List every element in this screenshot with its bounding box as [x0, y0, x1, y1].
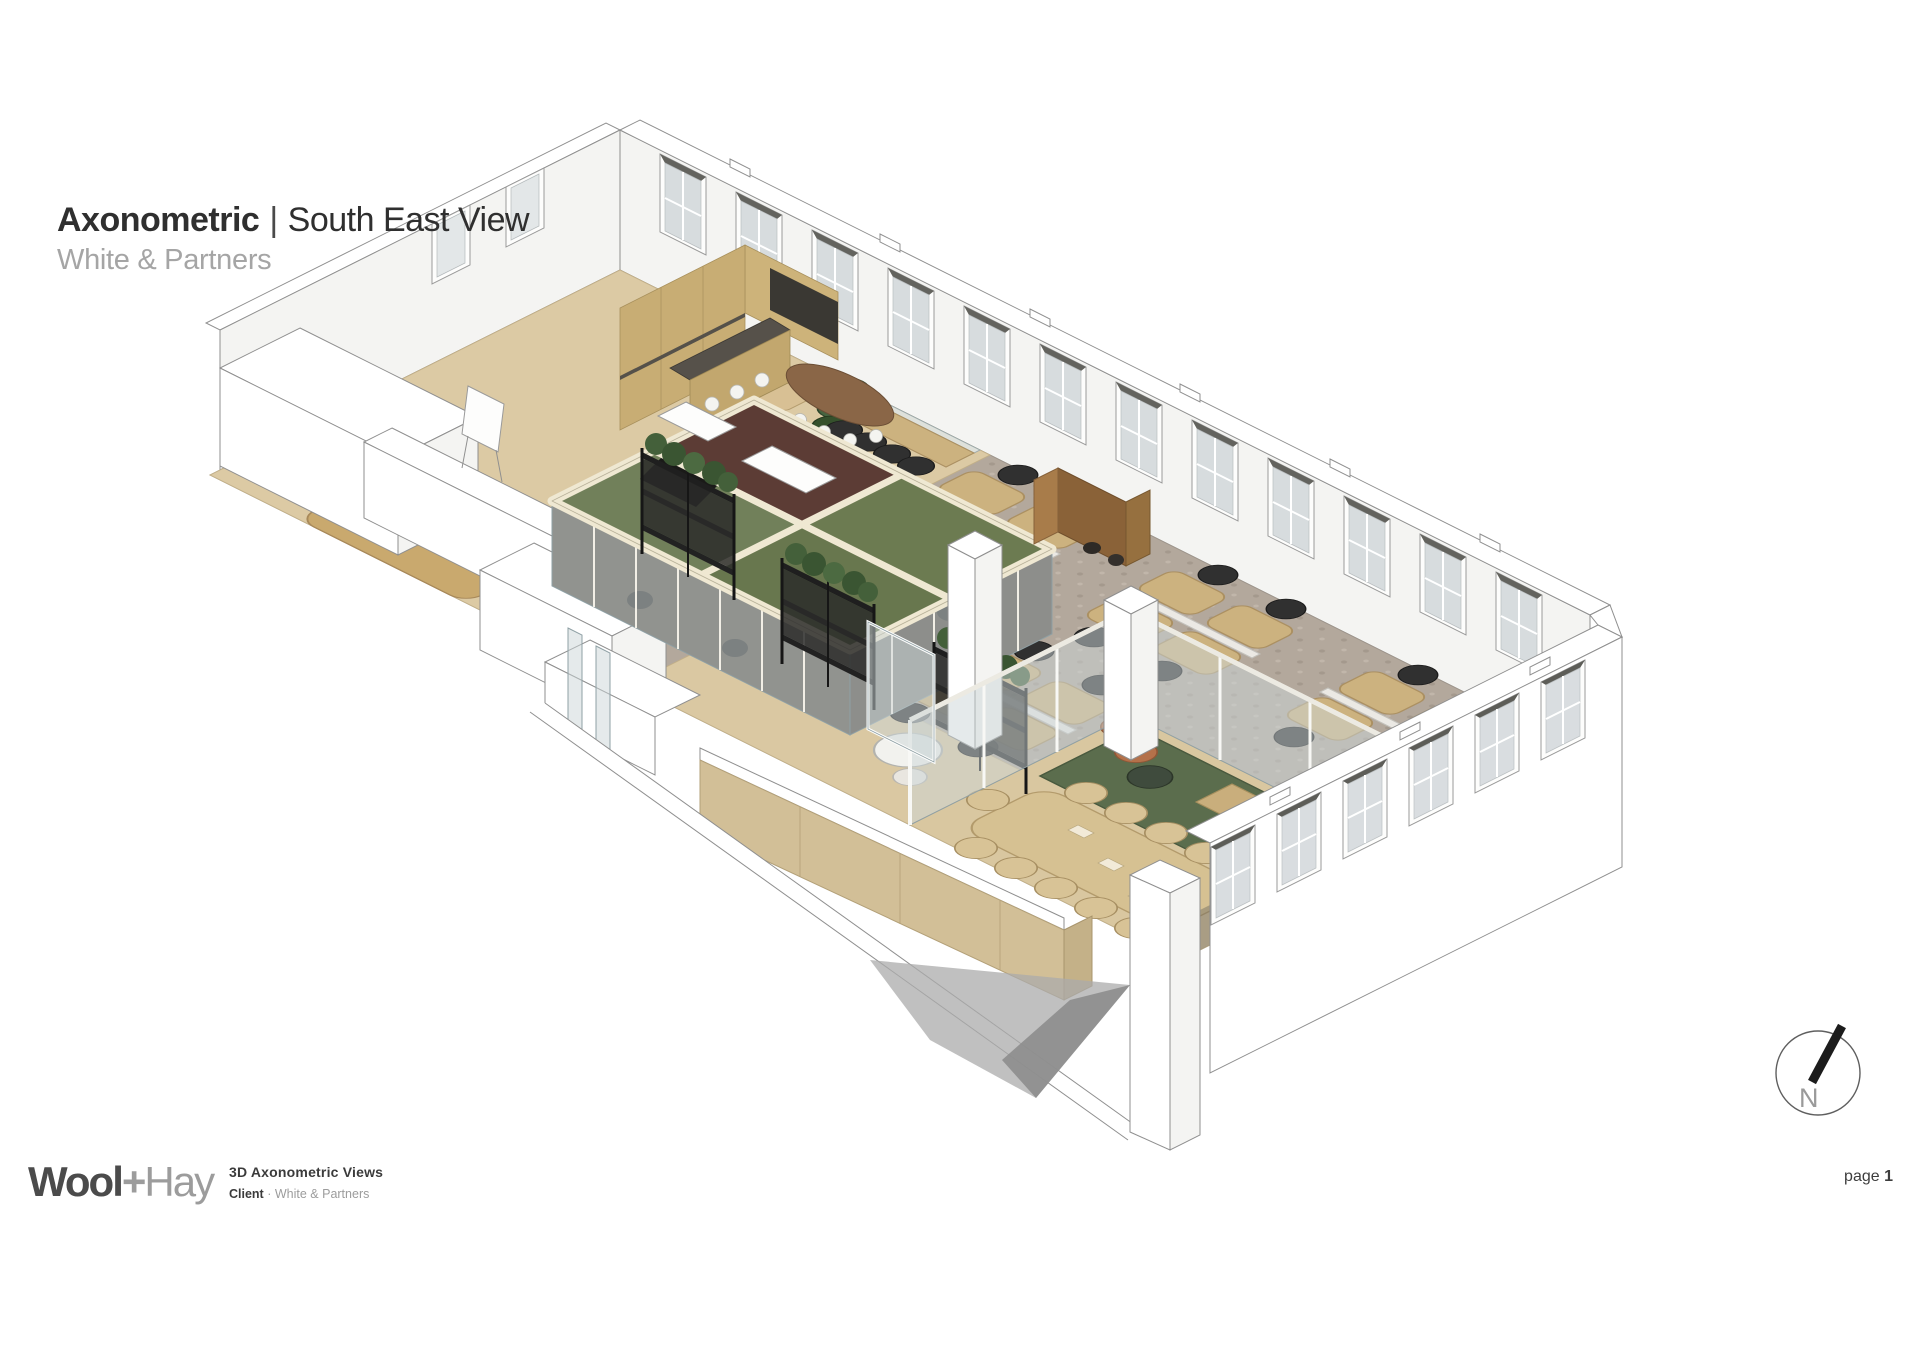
- page-number: page 1: [1844, 1168, 1893, 1186]
- logo-wool: Wool: [28, 1158, 122, 1205]
- bar-stool: [705, 397, 719, 411]
- client-subtitle: White & Partners: [57, 245, 529, 277]
- south-corner-pillar: [1130, 860, 1200, 1150]
- footer-document-block: 3D Axonometric Views Client · White & Pa…: [229, 1164, 383, 1201]
- logo-hay: Hay: [144, 1158, 213, 1205]
- client-separator: ·: [267, 1187, 271, 1201]
- page-title: Axonometric|South East View: [57, 202, 529, 239]
- client-name: White & Partners: [275, 1187, 369, 1201]
- title-divider: |: [259, 201, 287, 239]
- client-label: Client: [229, 1187, 264, 1201]
- bar-stool: [755, 373, 769, 387]
- boardroom-pillar: [1104, 586, 1158, 760]
- title-block: Axonometric|South East View White & Part…: [57, 202, 529, 277]
- logo-plus: +: [122, 1158, 145, 1205]
- page-number-value: 1: [1884, 1168, 1893, 1185]
- drawing-sheet: N Axonometric|South East View White & Pa…: [0, 0, 1920, 1371]
- wool-hay-logo: Wool+Hay: [28, 1158, 213, 1206]
- page-label: page: [1844, 1168, 1880, 1185]
- compass-north-label: N: [1799, 1083, 1819, 1113]
- document-client-line: Client · White & Partners: [229, 1187, 383, 1201]
- bar-stool: [730, 385, 744, 399]
- title-primary: Axonometric: [57, 201, 259, 239]
- document-title: 3D Axonometric Views: [229, 1164, 383, 1180]
- north-compass-icon: N: [1776, 1026, 1860, 1115]
- title-view-name: South East View: [288, 201, 529, 239]
